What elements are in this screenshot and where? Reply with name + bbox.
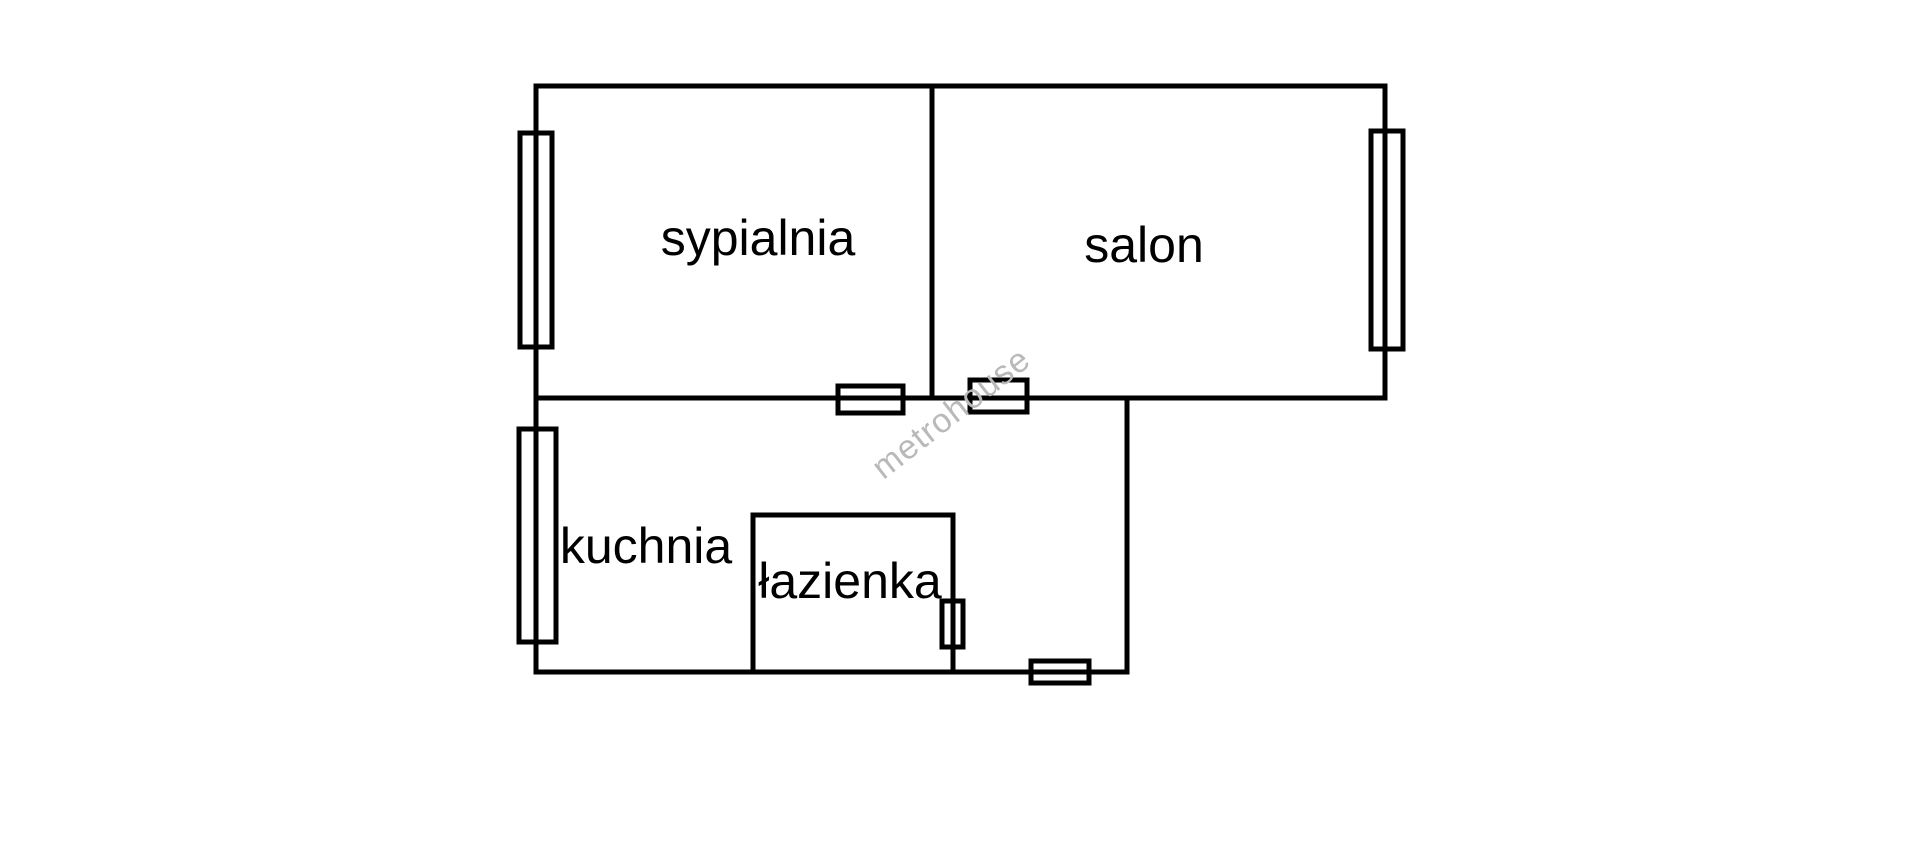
room-label-lazienka: łazienka <box>758 553 942 609</box>
room-label-kuchnia: kuchnia <box>560 518 733 574</box>
walls-layer <box>536 86 1385 672</box>
floor-plan-image: sypialniasalonkuchniałazienka metrohouse <box>0 0 1920 857</box>
floor-plan-page: sypialniasalonkuchniałazienka metrohouse <box>0 0 1920 857</box>
room-labels-layer: sypialniasalonkuchniałazienka <box>560 210 1204 609</box>
room-label-sypialnia: sypialnia <box>661 210 856 266</box>
room-label-salon: salon <box>1084 217 1204 273</box>
